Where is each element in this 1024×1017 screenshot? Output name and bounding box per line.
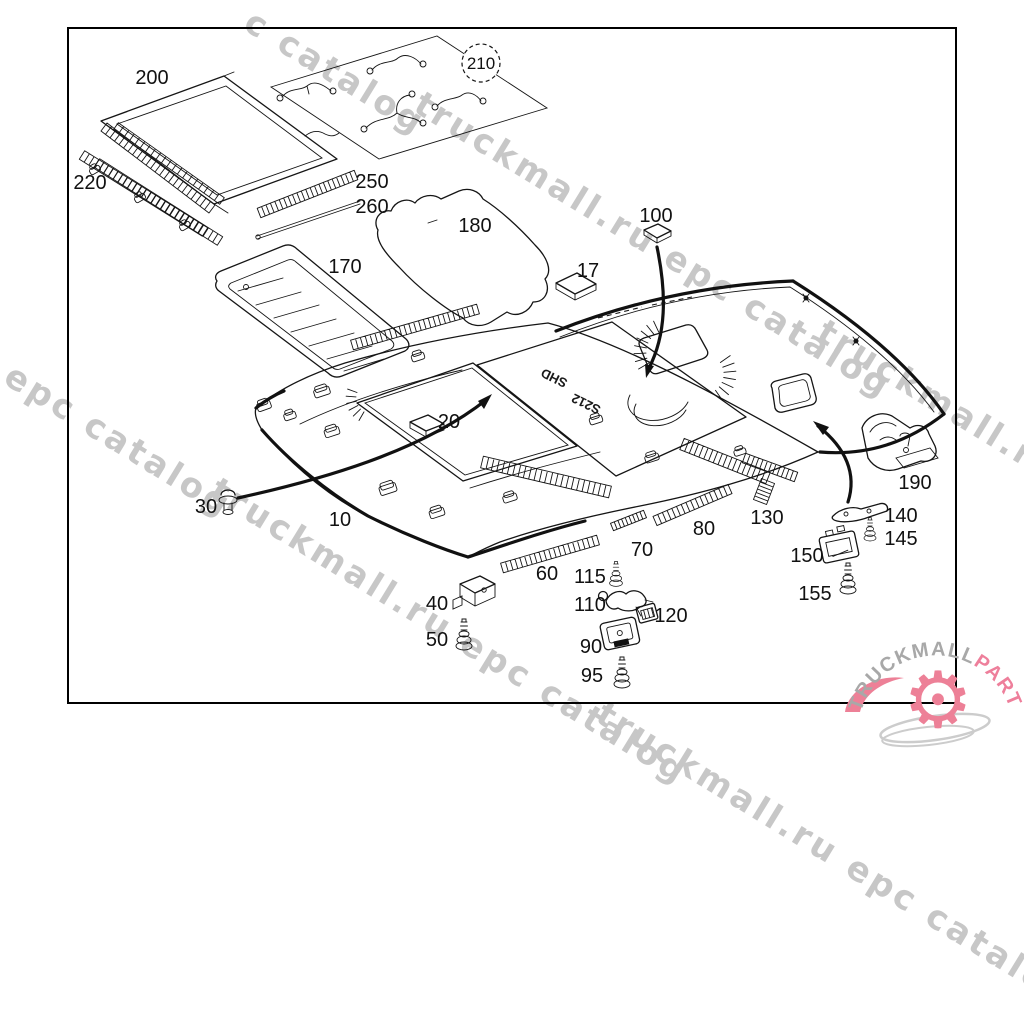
part-label-130: 130 [750, 507, 783, 529]
arrow-30-head [478, 394, 492, 409]
truckmall-logo: ⚙ TRUCKMALLPARTS [0, 0, 1024, 750]
part-label-70: 70 [631, 539, 653, 561]
part-label-190: 190 [898, 472, 931, 494]
part-label-180: 180 [458, 215, 491, 237]
part-label-30: 30 [195, 496, 217, 518]
logo-wordmark: TRUCKMALLPARTS [0, 0, 1024, 714]
part-label-220: 220 [73, 172, 106, 194]
part-label-140: 140 [884, 505, 917, 527]
part-label-40: 40 [426, 593, 448, 615]
screw [610, 562, 623, 587]
fitting [312, 383, 331, 398]
hook-110 [599, 591, 654, 616]
part-label-260: 260 [355, 196, 388, 218]
fitting [282, 408, 297, 421]
gear-icon: ⚙ [903, 656, 973, 746]
lever-140 [832, 503, 887, 521]
guide-arrow-right [813, 421, 851, 502]
part-label-20: 20 [438, 411, 460, 433]
part-label-210: 210 [467, 54, 495, 73]
bracket-40 [453, 576, 495, 609]
fastener-30 [219, 490, 237, 515]
fitting [323, 423, 341, 438]
logo-word-parts: PARTS [0, 0, 1024, 711]
radial-hatch-details [346, 321, 736, 420]
surface-mark-SHD: SHD [538, 365, 569, 391]
fitting [378, 479, 398, 496]
part-label-120: 120 [654, 605, 687, 627]
part-label-110: 110 [574, 594, 606, 616]
fitting [428, 504, 446, 519]
part-label-150: 150 [790, 545, 823, 567]
part-label-10: 10 [329, 509, 351, 531]
screw [864, 518, 876, 541]
gasket-180 [376, 189, 549, 325]
part-label-170: 170 [328, 256, 361, 278]
surface-mark-S212: S212 [569, 391, 603, 418]
part-label-17: 17 [577, 260, 599, 282]
sunshade-170 [216, 245, 409, 377]
harness-squiggles [277, 56, 486, 132]
screw [456, 619, 472, 650]
part-label-145: 145 [884, 528, 917, 550]
part-label-200: 200 [135, 67, 168, 89]
roof-skin [556, 281, 944, 453]
epc-diagram-page: { "watermark": { "color": "#c7c7c7", "in… [0, 0, 1024, 750]
fitting [732, 444, 746, 456]
part-label-115: 115 [574, 566, 606, 588]
part-label-100: 100 [639, 205, 672, 227]
part-labels: 2002202502601701801710020301040506070801… [73, 44, 931, 687]
part-label-155: 155 [798, 583, 831, 605]
arrow-100-head [645, 364, 654, 378]
part-label-250: 250 [355, 171, 388, 193]
parts-diagram-canvas: 2002202502601701801710020301040506070801… [0, 0, 1024, 750]
part-label-95: 95 [581, 665, 603, 687]
fitting [501, 490, 517, 504]
fitting [410, 349, 425, 363]
part-label-90: 90 [580, 636, 602, 658]
part-label-50: 50 [426, 629, 448, 651]
part-label-80: 80 [693, 518, 715, 540]
screw [840, 563, 856, 594]
bracket-90 [599, 617, 640, 651]
screw [614, 657, 630, 688]
part-label-60: 60 [536, 563, 558, 585]
bracket-190 [862, 414, 938, 471]
